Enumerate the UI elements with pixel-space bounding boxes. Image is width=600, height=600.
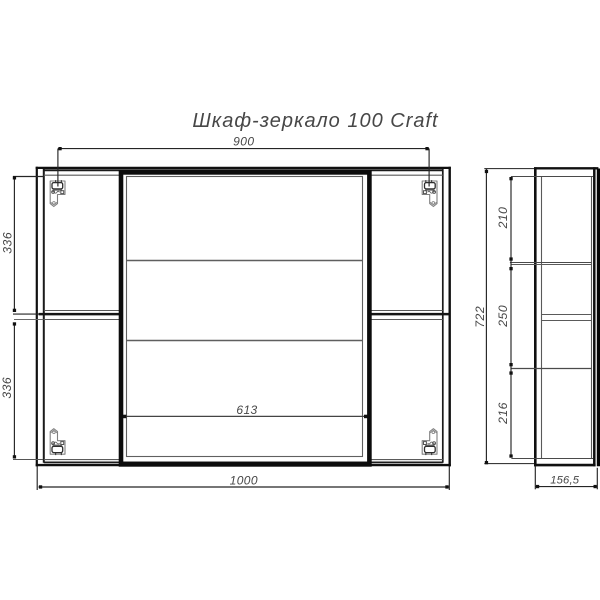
svg-text:210: 210: [496, 207, 510, 230]
svg-text:250: 250: [496, 305, 510, 328]
svg-text:Шкаф-зеркало 100 Craft: Шкаф-зеркало 100 Craft: [192, 110, 439, 132]
svg-text:1000: 1000: [230, 474, 258, 488]
svg-text:336: 336: [0, 377, 14, 399]
svg-text:156,5: 156,5: [550, 475, 580, 487]
svg-text:613: 613: [236, 403, 257, 417]
svg-text:216: 216: [496, 402, 510, 425]
svg-text:336: 336: [0, 232, 14, 254]
svg-text:722: 722: [473, 306, 487, 328]
svg-text:900: 900: [233, 135, 254, 149]
